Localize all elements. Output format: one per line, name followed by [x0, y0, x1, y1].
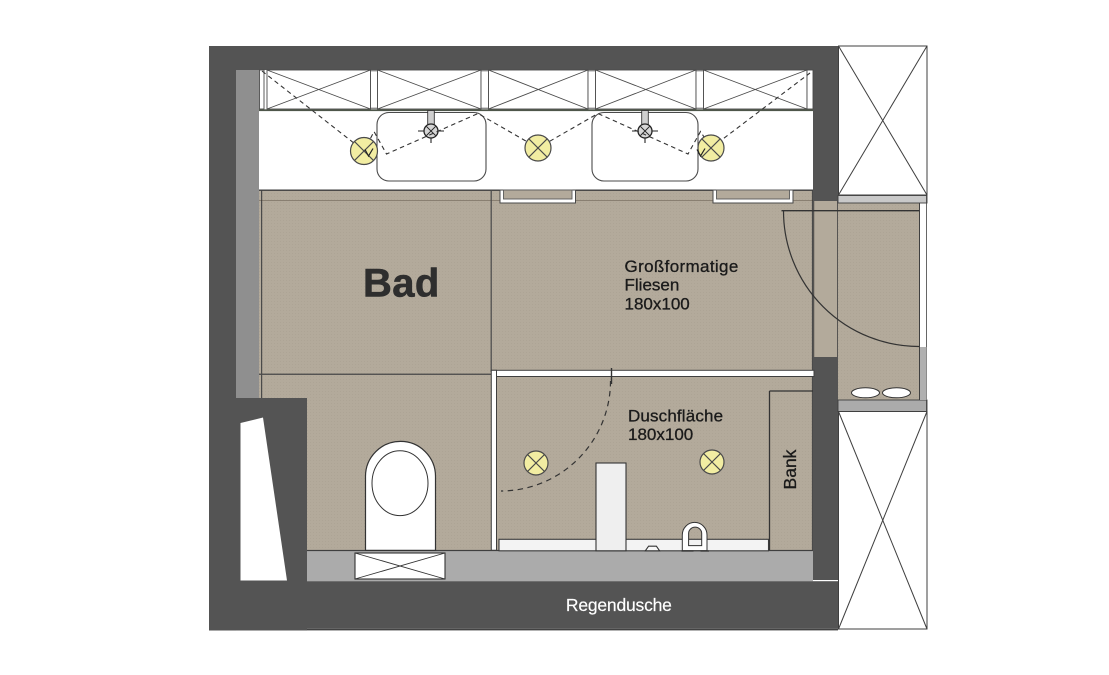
- svg-text:Bad: Bad: [363, 262, 440, 306]
- svg-text:180x100: 180x100: [625, 295, 690, 314]
- svg-text:Regendusche: Regendusche: [566, 595, 672, 615]
- svg-text:Fliesen: Fliesen: [625, 276, 680, 295]
- svg-text:180x100: 180x100: [628, 425, 693, 444]
- svg-text:Bank: Bank: [780, 449, 800, 489]
- svg-text:Duschfläche: Duschfläche: [628, 407, 723, 426]
- svg-text:Großformatige: Großformatige: [625, 257, 739, 276]
